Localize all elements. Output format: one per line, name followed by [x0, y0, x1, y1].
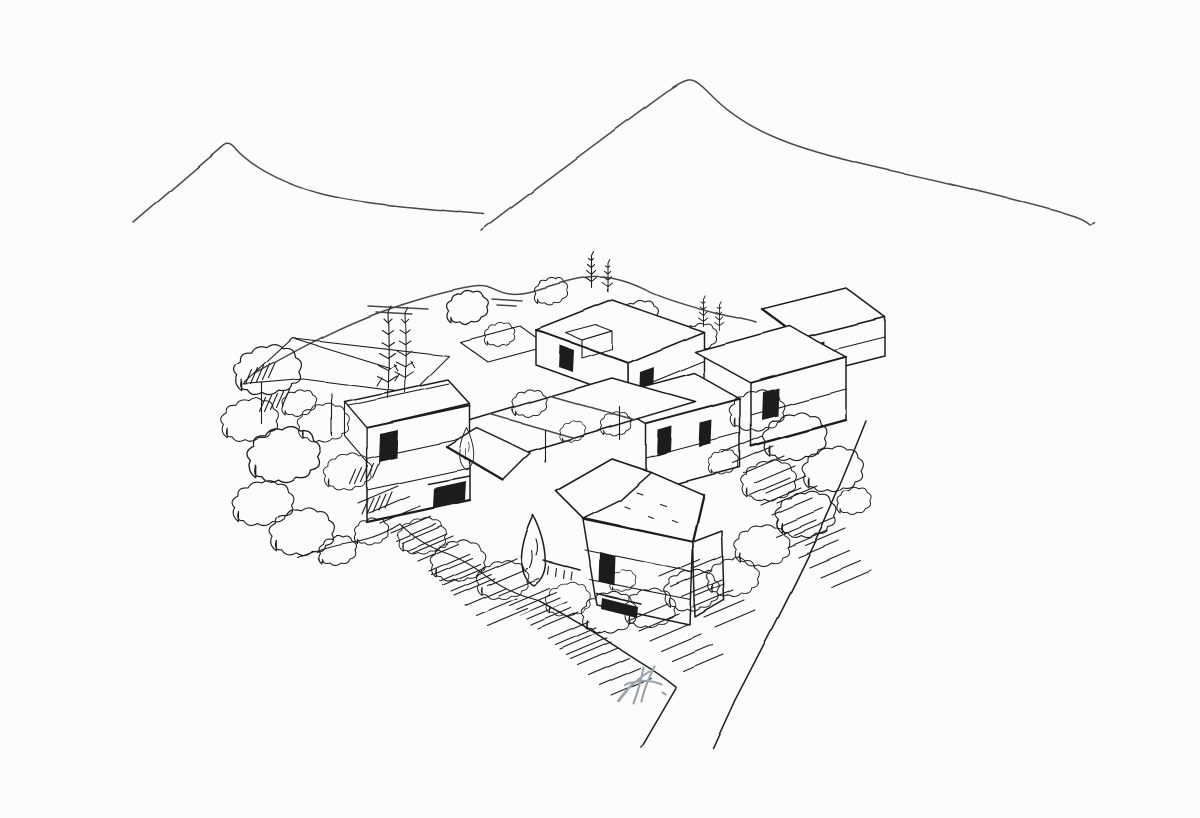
pointed-tree [521, 515, 545, 585]
small-pine-icon [586, 252, 597, 288]
tree-blob [397, 517, 446, 554]
hatch-band [750, 478, 845, 545]
hatch-band [476, 558, 571, 625]
tree-blob [298, 404, 350, 443]
flat-roof-slab [460, 326, 548, 362]
hatch-band [776, 520, 871, 587]
tree-blob [734, 525, 789, 566]
architectural-sketch [0, 0, 1200, 818]
tree-blob [545, 582, 591, 616]
tree-blob [232, 480, 293, 526]
small-pine-icon [714, 301, 723, 330]
tree-blob [318, 535, 356, 565]
side-awning [543, 560, 580, 570]
sketch-page [0, 0, 1200, 818]
tree-blob [802, 446, 863, 492]
building-front-centre [543, 459, 724, 625]
road-edge-outer [713, 421, 866, 748]
tree-blob [446, 291, 488, 324]
mountain-right-outline [481, 80, 1094, 230]
balcony-railing [547, 566, 572, 580]
sketch-drawing [133, 80, 1094, 748]
mountain-left-outline [133, 143, 484, 222]
tree-hatching [246, 362, 276, 384]
tall-conifer-icon [377, 306, 398, 398]
tree-blob [534, 278, 568, 305]
tree-blob [247, 427, 321, 482]
signature-monogram [618, 666, 665, 703]
road-edge-inner [641, 687, 676, 747]
tree-blob [282, 390, 316, 417]
small-pine-icon [603, 260, 613, 292]
tree-blob [837, 488, 871, 515]
tree-blob [221, 398, 279, 442]
